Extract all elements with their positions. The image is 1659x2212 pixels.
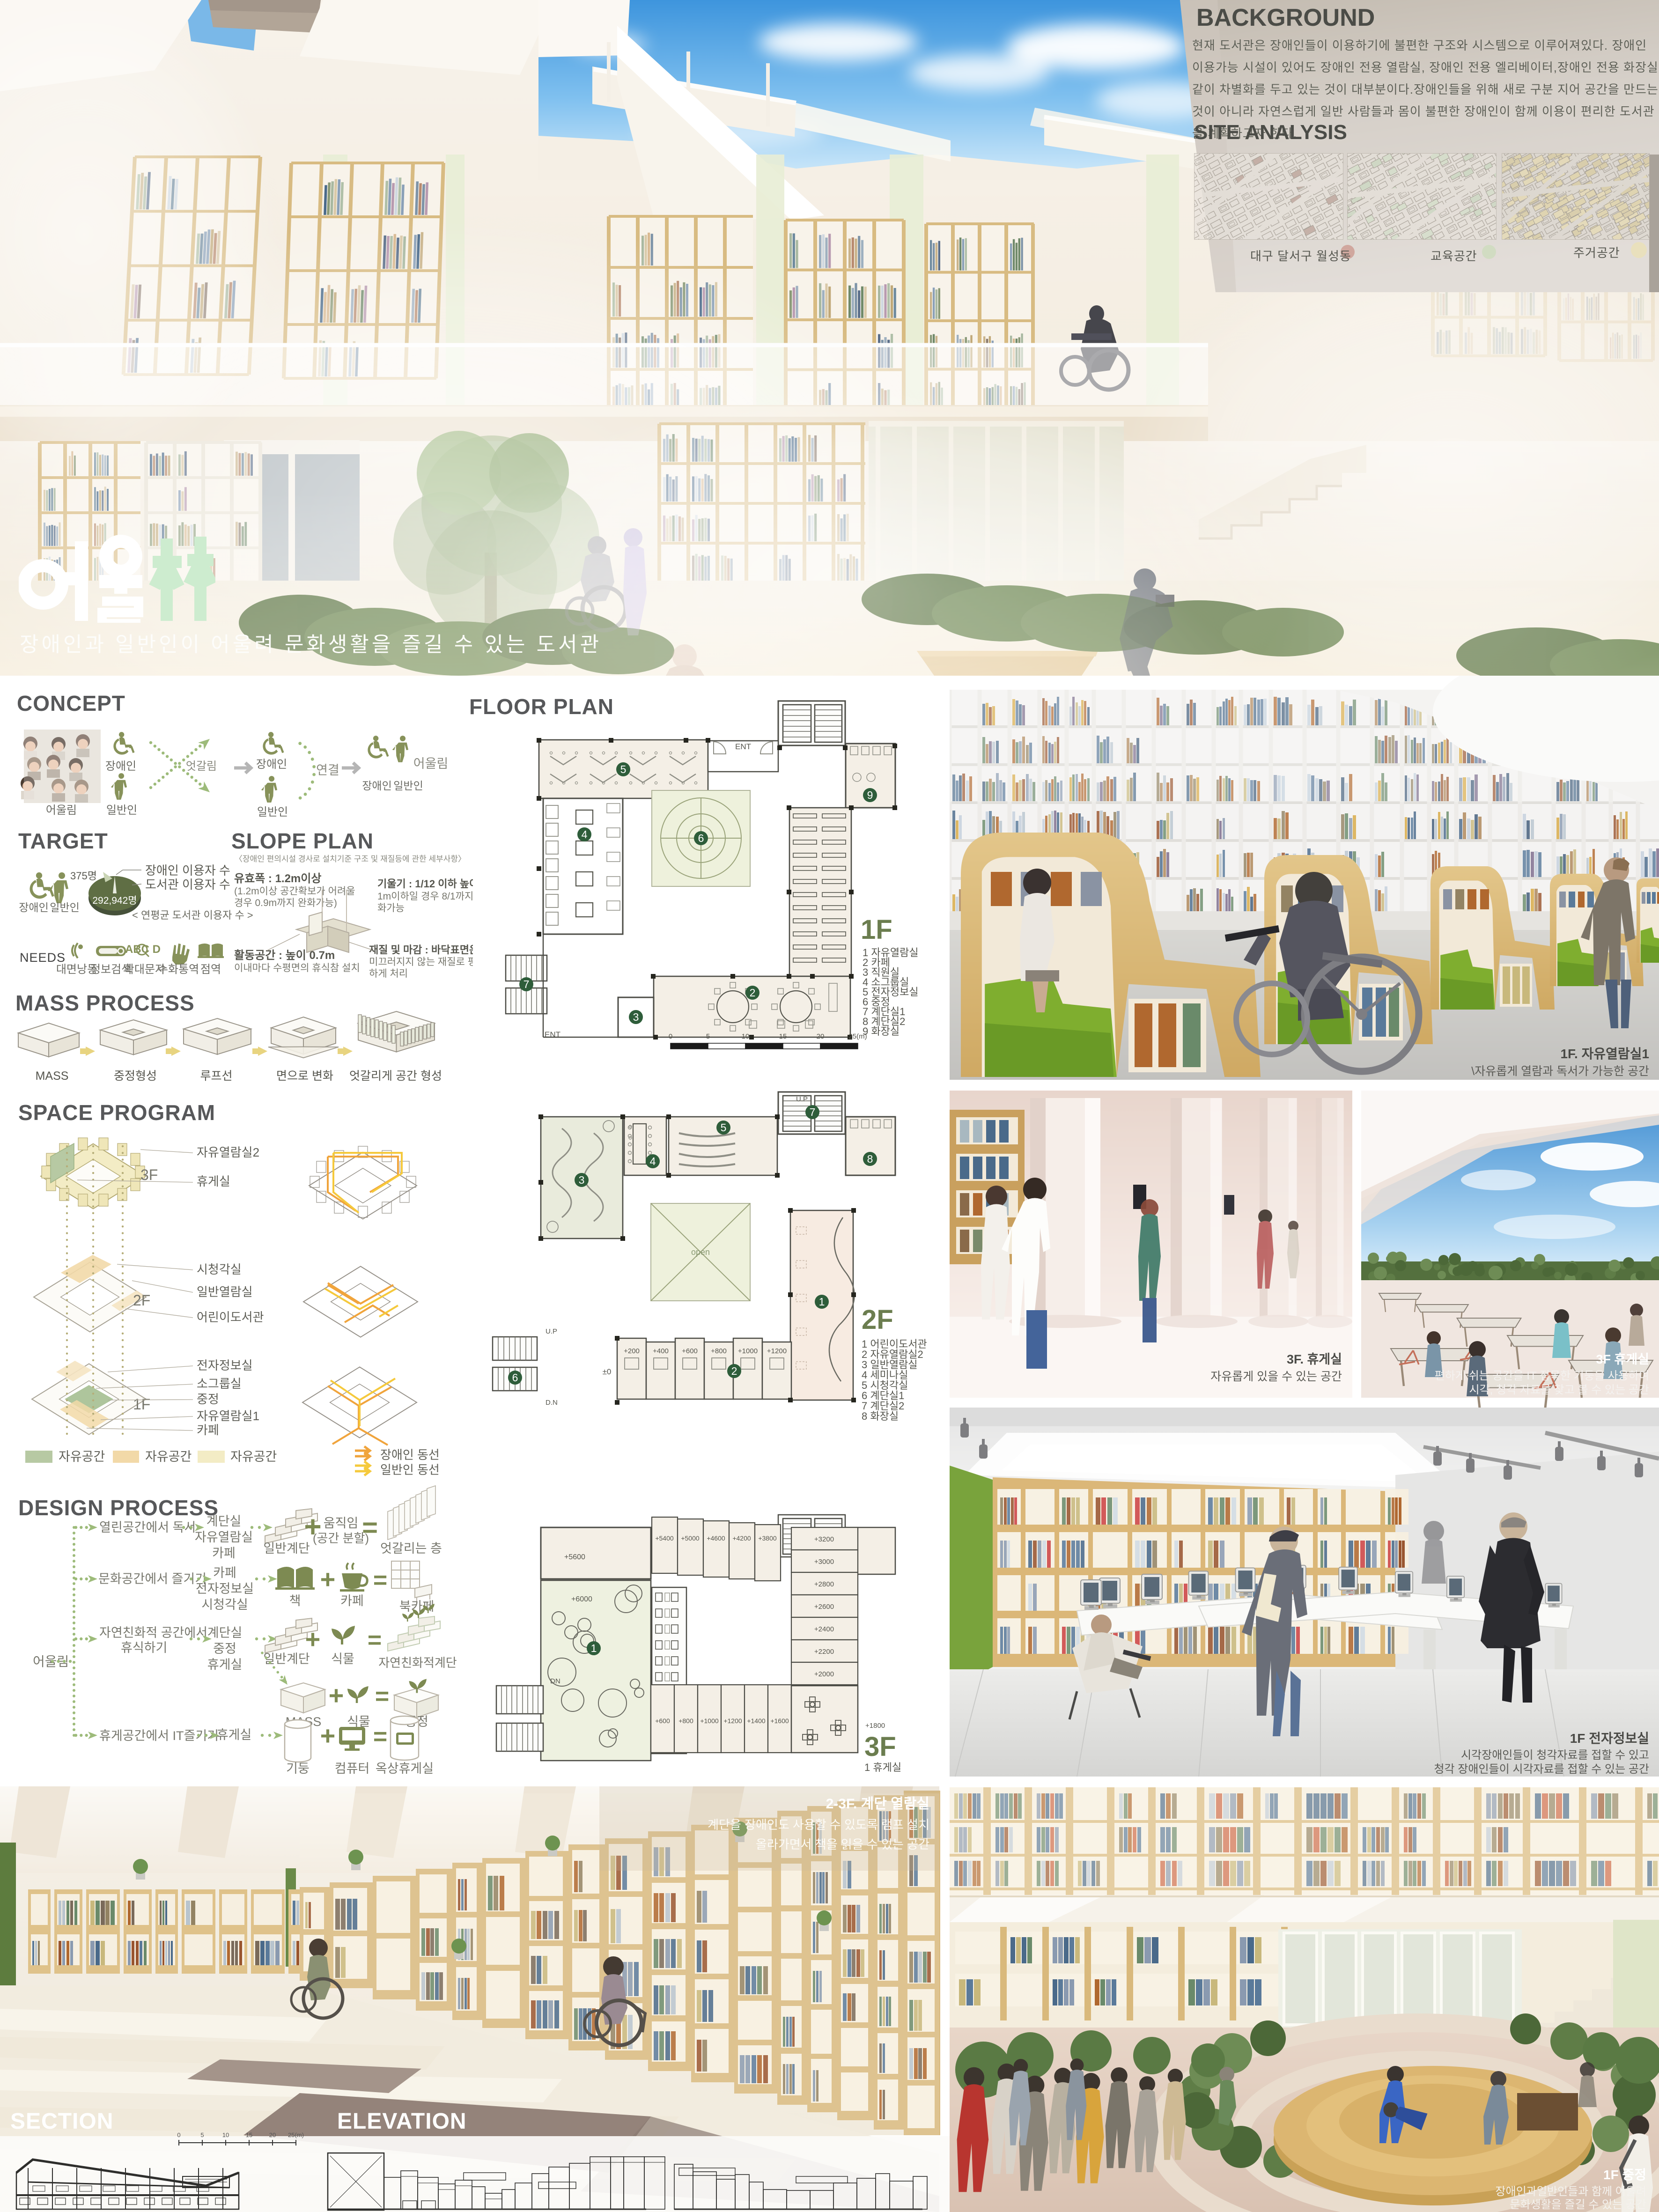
svg-text:1m이하일 경우 8/1까지 완: 1m이하일 경우 8/1까지 완 <box>377 891 473 902</box>
svg-text:+1000: +1000 <box>738 1347 758 1355</box>
svg-text:+2600: +2600 <box>814 1603 834 1611</box>
svg-text:+1200: +1200 <box>723 1717 742 1725</box>
svg-text:시각장애인들이 청각자료를 접할 수 있고: 시각장애인들이 청각자료를 접할 수 있고 <box>1461 1749 1649 1762</box>
svg-text:휴게실: 휴게실 <box>197 1174 230 1188</box>
svg-text:전자정보실: 전자정보실 <box>197 1358 253 1372</box>
svg-text:3F. 휴게실: 3F. 휴게실 <box>1287 1352 1342 1366</box>
svg-text:2: 2 <box>731 1365 737 1377</box>
svg-text:+600: +600 <box>655 1717 670 1725</box>
svg-text:엇갈리게 공간 형성: 엇갈리게 공간 형성 <box>349 1069 442 1083</box>
svg-text:3: 3 <box>633 1011 639 1023</box>
svg-text:어울림: 어울림 <box>413 757 449 771</box>
svg-text:0: 0 <box>669 1032 672 1040</box>
svg-text:하게 처리: 하게 처리 <box>369 968 408 979</box>
svg-text:+3000: +3000 <box>814 1558 834 1566</box>
svg-text:(공간 분할): (공간 분할) <box>313 1531 369 1545</box>
svg-text:+2400: +2400 <box>814 1625 834 1633</box>
svg-text:어린이도서관: 어린이도서관 <box>197 1310 264 1324</box>
svg-text:9: 9 <box>867 789 873 801</box>
svg-text:MASS: MASS <box>36 1069 69 1083</box>
svg-text:3F: 3F <box>140 1166 158 1183</box>
svg-text:+: + <box>305 1624 321 1654</box>
svg-text:1F 전자정보실: 1F 전자정보실 <box>1570 1731 1649 1746</box>
svg-text:CONCEPT: CONCEPT <box>17 691 125 715</box>
svg-text:장애인: 장애인 <box>256 758 287 771</box>
svg-text:20: 20 <box>817 1032 825 1040</box>
svg-text:1F: 1F <box>133 1396 150 1413</box>
svg-text:식물: 식물 <box>331 1652 354 1666</box>
svg-text:D.N: D.N <box>546 1399 558 1407</box>
svg-text:자유공간: 자유공간 <box>145 1450 192 1464</box>
svg-text:컴퓨터: 컴퓨터 <box>335 1762 370 1776</box>
svg-text:292,942명: 292,942명 <box>92 895 137 906</box>
svg-text:연결: 연결 <box>316 763 339 777</box>
svg-text:10: 10 <box>222 2131 229 2138</box>
svg-text:+2800: +2800 <box>814 1580 834 1588</box>
svg-text:FLOOR PLAN: FLOOR PLAN <box>469 694 614 719</box>
svg-text:8: 8 <box>867 1153 873 1165</box>
svg-text:자유공간: 자유공간 <box>59 1450 105 1464</box>
svg-text:화가능: 화가능 <box>377 903 405 914</box>
svg-text:20: 20 <box>269 2131 276 2138</box>
svg-text:1: 1 <box>819 1296 825 1308</box>
svg-text:경우 0.9m까지 완화가능): 경우 0.9m까지 완화가능) <box>234 898 337 908</box>
svg-text:+2000: +2000 <box>814 1670 834 1678</box>
svg-text:4: 4 <box>582 828 588 841</box>
svg-text:문화생활을 즐길 수 있는 공간: 문화생활을 즐길 수 있는 공간 <box>1510 2198 1646 2211</box>
svg-text:+200: +200 <box>624 1347 640 1355</box>
svg-text:중정: 중정 <box>197 1392 219 1406</box>
svg-text:5: 5 <box>200 2131 204 2138</box>
svg-text:7: 7 <box>524 978 530 990</box>
svg-text:25(m): 25(m) <box>848 1032 867 1040</box>
svg-text:엇갈리는 층: 엇갈리는 층 <box>380 1541 442 1556</box>
svg-text:일반계단: 일반계단 <box>263 1541 310 1556</box>
svg-text:움직임: 움직임 <box>324 1516 359 1530</box>
svg-text:활동공간 : 높이 0.7m: 활동공간 : 높이 0.7m <box>234 949 335 962</box>
svg-text:2F: 2F <box>133 1292 150 1309</box>
svg-text:DN: DN <box>550 1677 560 1685</box>
svg-text:계단실: 계단실 <box>207 1626 243 1640</box>
svg-text:〈장애인 편의시설 경사로 설치기준 구조 및 재질등에: 〈장애인 편의시설 경사로 설치기준 구조 및 재질등에 관한 세부사항〉 <box>235 855 466 863</box>
svg-text:+2200: +2200 <box>814 1648 834 1656</box>
svg-text:+800: +800 <box>711 1347 727 1355</box>
svg-text:3F: 3F <box>864 1732 896 1762</box>
svg-text:+6000: +6000 <box>571 1595 592 1603</box>
svg-text:이내마다 수평면의 휴식참 설치: 이내마다 수평면의 휴식참 설치 <box>234 963 360 973</box>
svg-text:중정: 중정 <box>213 1642 236 1656</box>
svg-text:\자유롭게 열람과 독서가 가능한 공간: \자유롭게 열람과 독서가 가능한 공간 <box>1471 1065 1649 1078</box>
svg-text:U.P: U.P <box>796 1095 808 1103</box>
svg-text:휴게실: 휴게실 <box>217 1728 252 1742</box>
svg-text:계단을 장애인도 사용할 수 있도록 램프 설치: 계단을 장애인도 사용할 수 있도록 램프 설치 <box>708 1818 929 1832</box>
svg-text:SLOPE PLAN: SLOPE PLAN <box>231 829 374 853</box>
svg-text:카페: 카페 <box>213 1566 236 1580</box>
svg-text:일반열람실: 일반열람실 <box>197 1285 253 1299</box>
svg-text:청각 장애인들이 시각자료를 접할 수 있는 공간: 청각 장애인들이 시각자료를 접할 수 있는 공간 <box>1434 1763 1649 1776</box>
svg-text:일반인: 일반인 <box>257 806 288 818</box>
svg-text:휴게실: 휴게실 <box>207 1658 243 1672</box>
svg-text:자유롭게 있을 수 있는 공간: 자유롭게 있을 수 있는 공간 <box>1210 1370 1342 1383</box>
svg-text:< 연평균 도서관 이용자 수 >: < 연평균 도서관 이용자 수 > <box>132 909 253 921</box>
svg-text:장애인 동선: 장애인 동선 <box>380 1448 440 1462</box>
svg-text:장애인과일반인들과 함께 어울려: 장애인과일반인들과 함께 어울려 <box>1496 2185 1646 2198</box>
svg-text:일반인: 일반인 <box>50 901 79 914</box>
svg-text:2-3F. 계단 열람실: 2-3F. 계단 열람실 <box>826 1796 929 1812</box>
svg-text:면으로 변화: 면으로 변화 <box>276 1069 333 1083</box>
svg-text:자연친화적계단: 자연친화적계단 <box>378 1656 457 1670</box>
svg-text:=: = <box>362 1512 378 1543</box>
svg-text:25(m): 25(m) <box>288 2131 304 2138</box>
svg-text:카페: 카페 <box>212 1546 236 1560</box>
svg-text:open: open <box>691 1247 710 1257</box>
svg-text:+800: +800 <box>678 1717 693 1725</box>
svg-text:SPACE PROGRAM: SPACE PROGRAM <box>18 1100 215 1125</box>
svg-text:+1000: +1000 <box>700 1717 719 1725</box>
svg-text:10: 10 <box>742 1032 750 1040</box>
svg-text:중정형성: 중정형성 <box>114 1069 157 1083</box>
svg-text:+4600: +4600 <box>707 1534 725 1542</box>
svg-text:SECTION: SECTION <box>10 2109 113 2134</box>
svg-text:자유열람실: 자유열람실 <box>195 1530 253 1544</box>
svg-text:일반인: 일반인 <box>106 804 137 817</box>
svg-text:+1800: +1800 <box>865 1722 885 1730</box>
svg-text:+5400: +5400 <box>655 1534 674 1542</box>
svg-text:15: 15 <box>246 2131 252 2138</box>
svg-text:재질 및 마감 : 바닥표면은: 재질 및 마감 : 바닥표면은 <box>369 944 473 956</box>
svg-text:5: 5 <box>620 763 627 775</box>
svg-text:휴식하기: 휴식하기 <box>121 1641 167 1655</box>
svg-text:15: 15 <box>779 1032 787 1040</box>
svg-text:편하게 쉬는 공간을 IT 접목한 기둥을 사용하여: 편하게 쉬는 공간을 IT 접목한 기둥을 사용하여 <box>1435 1370 1649 1382</box>
svg-text:미끄러지지 않는 재질로 평탄: 미끄러지지 않는 재질로 평탄 <box>369 957 473 967</box>
svg-text:열린공간에서 독서: 열린공간에서 독서 <box>99 1520 196 1534</box>
svg-text:1: 1 <box>591 1642 597 1654</box>
svg-text:식물: 식물 <box>347 1715 370 1729</box>
svg-text:장애인: 장애인 <box>362 780 391 792</box>
svg-text:전자정보실: 전자정보실 <box>196 1582 254 1596</box>
svg-text:일반계단: 일반계단 <box>263 1652 310 1666</box>
svg-text:일반인: 일반인 <box>393 780 423 792</box>
svg-text:+5600: +5600 <box>564 1553 585 1561</box>
svg-text:자유열람실1: 자유열람실1 <box>197 1409 259 1423</box>
svg-text:1F. 자유열람실1: 1F. 자유열람실1 <box>1560 1047 1649 1061</box>
svg-text:NEEDS: NEEDS <box>20 951 66 965</box>
svg-text:일반인 동선: 일반인 동선 <box>380 1463 440 1477</box>
svg-text:375명: 375명 <box>70 870 97 882</box>
svg-text:MASS PROCESS: MASS PROCESS <box>15 991 195 1015</box>
svg-text:장애인: 장애인 <box>105 760 136 773</box>
svg-text:1F 중정: 1F 중정 <box>1603 2168 1646 2182</box>
svg-text:자유열람실2: 자유열람실2 <box>197 1145 259 1159</box>
svg-text:±0: ±0 <box>603 1367 612 1376</box>
svg-text:수화통역: 수화통역 <box>158 963 199 976</box>
svg-text:기울기 : 1/12 이하 높이가: 기울기 : 1/12 이하 높이가 <box>377 878 473 890</box>
svg-text:시청각실: 시청각실 <box>201 1598 248 1612</box>
svg-text:점역: 점역 <box>200 963 221 976</box>
svg-text:올라가면서 책을 읽을 수 있는 공간: 올라가면서 책을 읽을 수 있는 공간 <box>756 1837 929 1851</box>
svg-text:+1400: +1400 <box>747 1717 766 1725</box>
svg-text:+: + <box>329 1681 344 1710</box>
svg-text:+1600: +1600 <box>770 1717 789 1725</box>
svg-text:+1200: +1200 <box>767 1347 787 1355</box>
svg-text:2F: 2F <box>862 1305 893 1335</box>
svg-text:+3800: +3800 <box>758 1534 777 1542</box>
svg-text:자유공간: 자유공간 <box>230 1450 277 1464</box>
svg-text:장애인 이용자 수: 장애인 이용자 수 <box>145 863 230 877</box>
svg-text:=: = <box>375 1683 389 1710</box>
svg-text:엇갈림: 엇갈림 <box>186 760 217 773</box>
svg-text:DESIGN PROCESS: DESIGN PROCESS <box>18 1496 219 1520</box>
svg-text:6: 6 <box>698 832 704 844</box>
svg-text:+3200: +3200 <box>814 1535 834 1543</box>
svg-text:시청각실: 시청각실 <box>197 1262 242 1276</box>
svg-text:도서관 이용자 수: 도서관 이용자 수 <box>145 877 230 892</box>
svg-text:기둥: 기둥 <box>286 1762 310 1776</box>
svg-text:유효폭 : 1.2m이상: 유효폭 : 1.2m이상 <box>234 872 321 885</box>
svg-text:3F 휴게실: 3F 휴게실 <box>1596 1352 1649 1366</box>
svg-text:2: 2 <box>750 987 756 999</box>
svg-text:0: 0 <box>177 2131 180 2138</box>
svg-text:+5000: +5000 <box>681 1534 700 1542</box>
svg-text:카페: 카페 <box>197 1423 219 1437</box>
svg-text:=: = <box>373 1723 387 1750</box>
svg-text:어울림: 어울림 <box>46 804 77 817</box>
svg-text:=: = <box>368 1627 382 1654</box>
svg-text:옥상휴게실: 옥상휴게실 <box>376 1762 434 1776</box>
svg-text:+: + <box>320 1564 336 1594</box>
svg-text:책: 책 <box>289 1594 301 1608</box>
svg-text:=: = <box>373 1567 387 1594</box>
svg-text:1 휴게실: 1 휴게실 <box>864 1762 901 1773</box>
svg-text:ELEVATION: ELEVATION <box>337 2109 467 2134</box>
svg-text:+: + <box>320 1721 336 1750</box>
svg-text:3: 3 <box>579 1174 585 1186</box>
svg-text:(1.2m이상 공간확보가 어려울: (1.2m이상 공간확보가 어려울 <box>234 886 355 897</box>
svg-text:카페: 카페 <box>340 1594 364 1608</box>
svg-text:장애인: 장애인 <box>19 901 48 914</box>
svg-text:휴게공간에서 IT즐기기: 휴게공간에서 IT즐기기 <box>99 1729 219 1743</box>
svg-text:7: 7 <box>810 1106 816 1118</box>
svg-text:+400: +400 <box>653 1347 669 1355</box>
svg-text:계단실: 계단실 <box>206 1514 242 1528</box>
svg-text:시각, 청각 자료를 찾고 볼 수 있는 공간: 시각, 청각 자료를 찾고 볼 수 있는 공간 <box>1469 1384 1649 1396</box>
svg-text:+4200: +4200 <box>732 1534 751 1542</box>
svg-text:5: 5 <box>706 1032 710 1040</box>
svg-text:5: 5 <box>721 1121 727 1134</box>
svg-text:+600: +600 <box>682 1347 698 1355</box>
svg-text:8 화장실: 8 화장실 <box>862 1410 899 1422</box>
svg-text:1F: 1F <box>861 914 892 945</box>
svg-text:U.P: U.P <box>546 1327 557 1335</box>
svg-text:소그룹실: 소그룹실 <box>197 1377 242 1391</box>
svg-text:루프선: 루프선 <box>200 1069 232 1083</box>
svg-text:9 화장실: 9 화장실 <box>863 1025 900 1037</box>
svg-text:TARGET: TARGET <box>18 829 108 853</box>
svg-text:ENT: ENT <box>735 742 751 751</box>
svg-text:6: 6 <box>512 1371 518 1384</box>
svg-text:4: 4 <box>650 1155 656 1167</box>
